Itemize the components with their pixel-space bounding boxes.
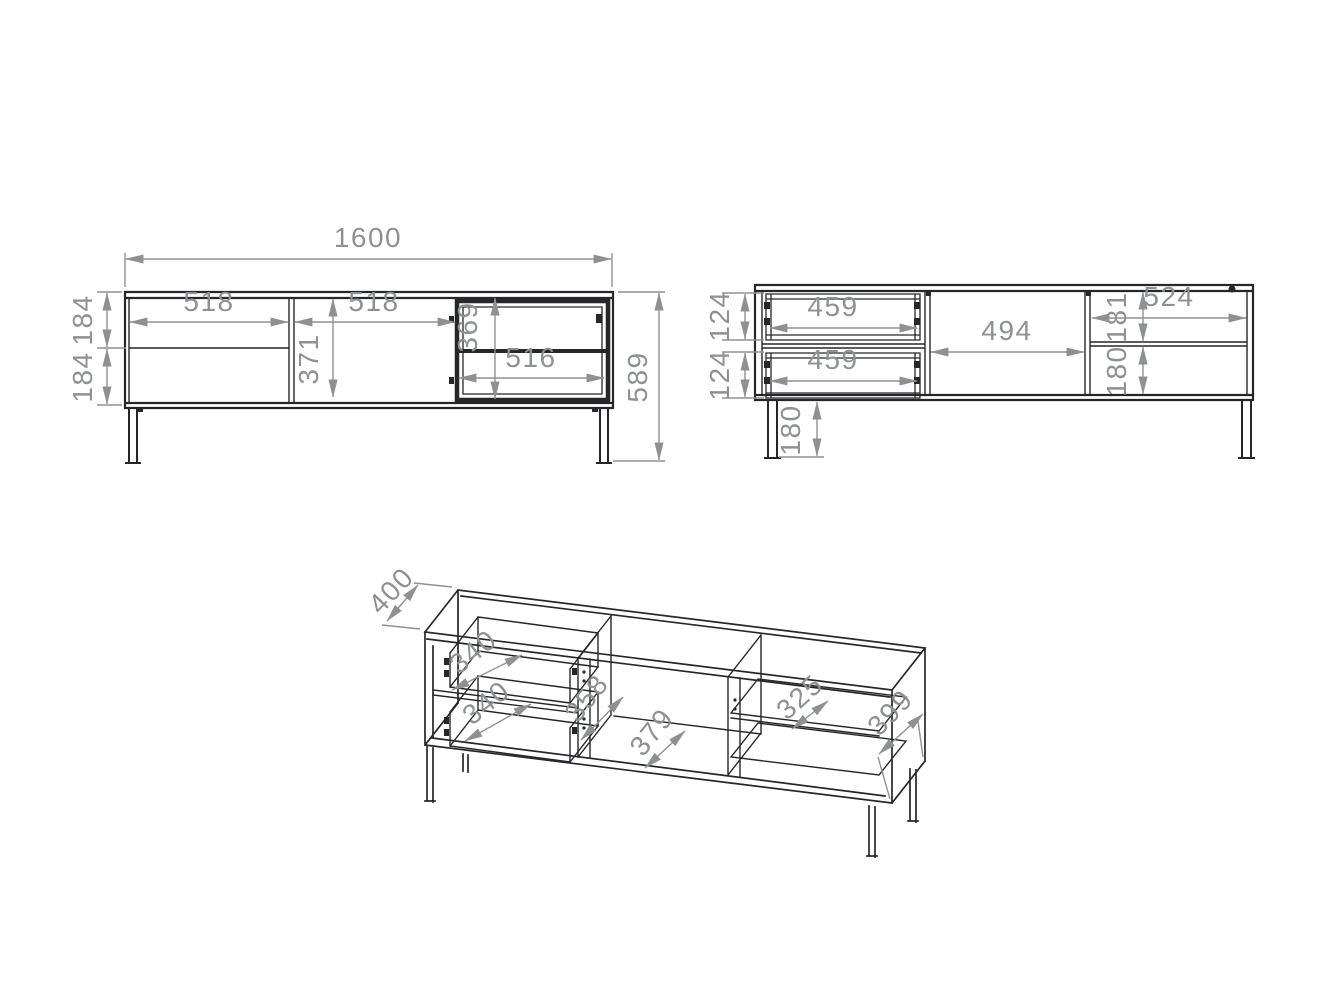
drawer-slide-mark: [444, 729, 449, 736]
dim-top-drawer-depth: 340: [443, 623, 502, 679]
drawer-slide-mark: [572, 668, 577, 675]
dim-right-upper-height: 181: [1101, 291, 1132, 342]
dim-right-lower-height: 180: [1101, 345, 1132, 396]
dim-top-drawer-height: 124: [704, 290, 735, 341]
cam-fitting: [1086, 291, 1091, 296]
dim-glass-door-width: 516: [505, 342, 556, 373]
drawer-slide-mark: [444, 717, 449, 724]
front-left-leg: [126, 408, 140, 463]
shelf-pin-hole: [733, 698, 736, 701]
dim-overall-width: 1600: [334, 222, 402, 253]
dim-middle-section-width: 494: [981, 315, 1032, 346]
drawer-slide-mark: [764, 302, 770, 309]
furniture-dimension-drawing: 1600 589 184 184 518 518 371 369 516: [0, 0, 1341, 1005]
glass-door-handle: [596, 314, 602, 323]
dim-overall-depth: 400: [362, 561, 420, 620]
back-view-dimensions: 459 459 494 524 181 180 124 124 180: [704, 281, 1246, 457]
hinge-mark-bottom: [449, 377, 454, 384]
drawer-slide-mark: [444, 670, 449, 677]
front-view: 1600 589 184 184 518 518 371 369 516: [67, 222, 665, 463]
drawer-slide-mark: [914, 318, 920, 325]
front-view-dimensions: 1600 589 184 184 518 518 371 369 516: [67, 222, 665, 461]
dim-glass-door-height: 369: [452, 301, 483, 352]
shelf-pin-hole: [582, 670, 585, 673]
dim-door-section-width: 518: [348, 286, 399, 317]
dim-bottom-drawer-height: 184: [67, 351, 98, 402]
cam-lock: [1229, 286, 1236, 293]
drawer-slide-mark: [764, 377, 770, 384]
dim-middle-inner-width: 379: [623, 702, 679, 761]
shelf-pin-hole: [733, 707, 736, 710]
dim-shelf-depth: 325: [770, 668, 829, 725]
technical-drawing-sheet: 1600 589 184 184 518 518 371 369 516: [0, 0, 1341, 1005]
dim-top-drawer-width: 459: [807, 291, 858, 322]
isometric-view: 400 340 340 358 379 325 399: [362, 561, 925, 857]
dim-drawer-section-width: 518: [183, 286, 234, 317]
extension-lines: [97, 253, 665, 461]
leg-bracket-right: [592, 409, 598, 412]
back-right-leg: [1239, 400, 1254, 458]
dim-leg-height: 180: [775, 404, 806, 455]
dim-overall-height: 589: [622, 351, 653, 402]
iso-legs: [425, 747, 918, 857]
iso-dimensions: 400 340 340 358 379 325 399: [362, 561, 923, 799]
cam-fitting: [926, 291, 931, 296]
back-view: 459 459 494 524 181 180 124 124 180: [704, 281, 1254, 458]
dim-top-drawer-height: 184: [67, 294, 98, 345]
leg-bracket-left: [137, 409, 143, 412]
dim-bottom-drawer-width: 459: [807, 344, 858, 375]
drawer-slide-mark: [914, 361, 920, 368]
drawer-slide-mark: [914, 302, 920, 309]
dim-door-inner-height: 371: [293, 333, 324, 384]
front-right-leg: [597, 408, 611, 463]
drawer-slide-mark: [764, 361, 770, 368]
dim-right-section-width: 524: [1143, 281, 1194, 312]
dim-bottom-drawer-height: 124: [704, 349, 735, 400]
dim-middle-inner-height: 358: [558, 668, 614, 727]
drawer-slide-mark: [572, 727, 577, 734]
drawer-slide-mark: [764, 318, 770, 325]
